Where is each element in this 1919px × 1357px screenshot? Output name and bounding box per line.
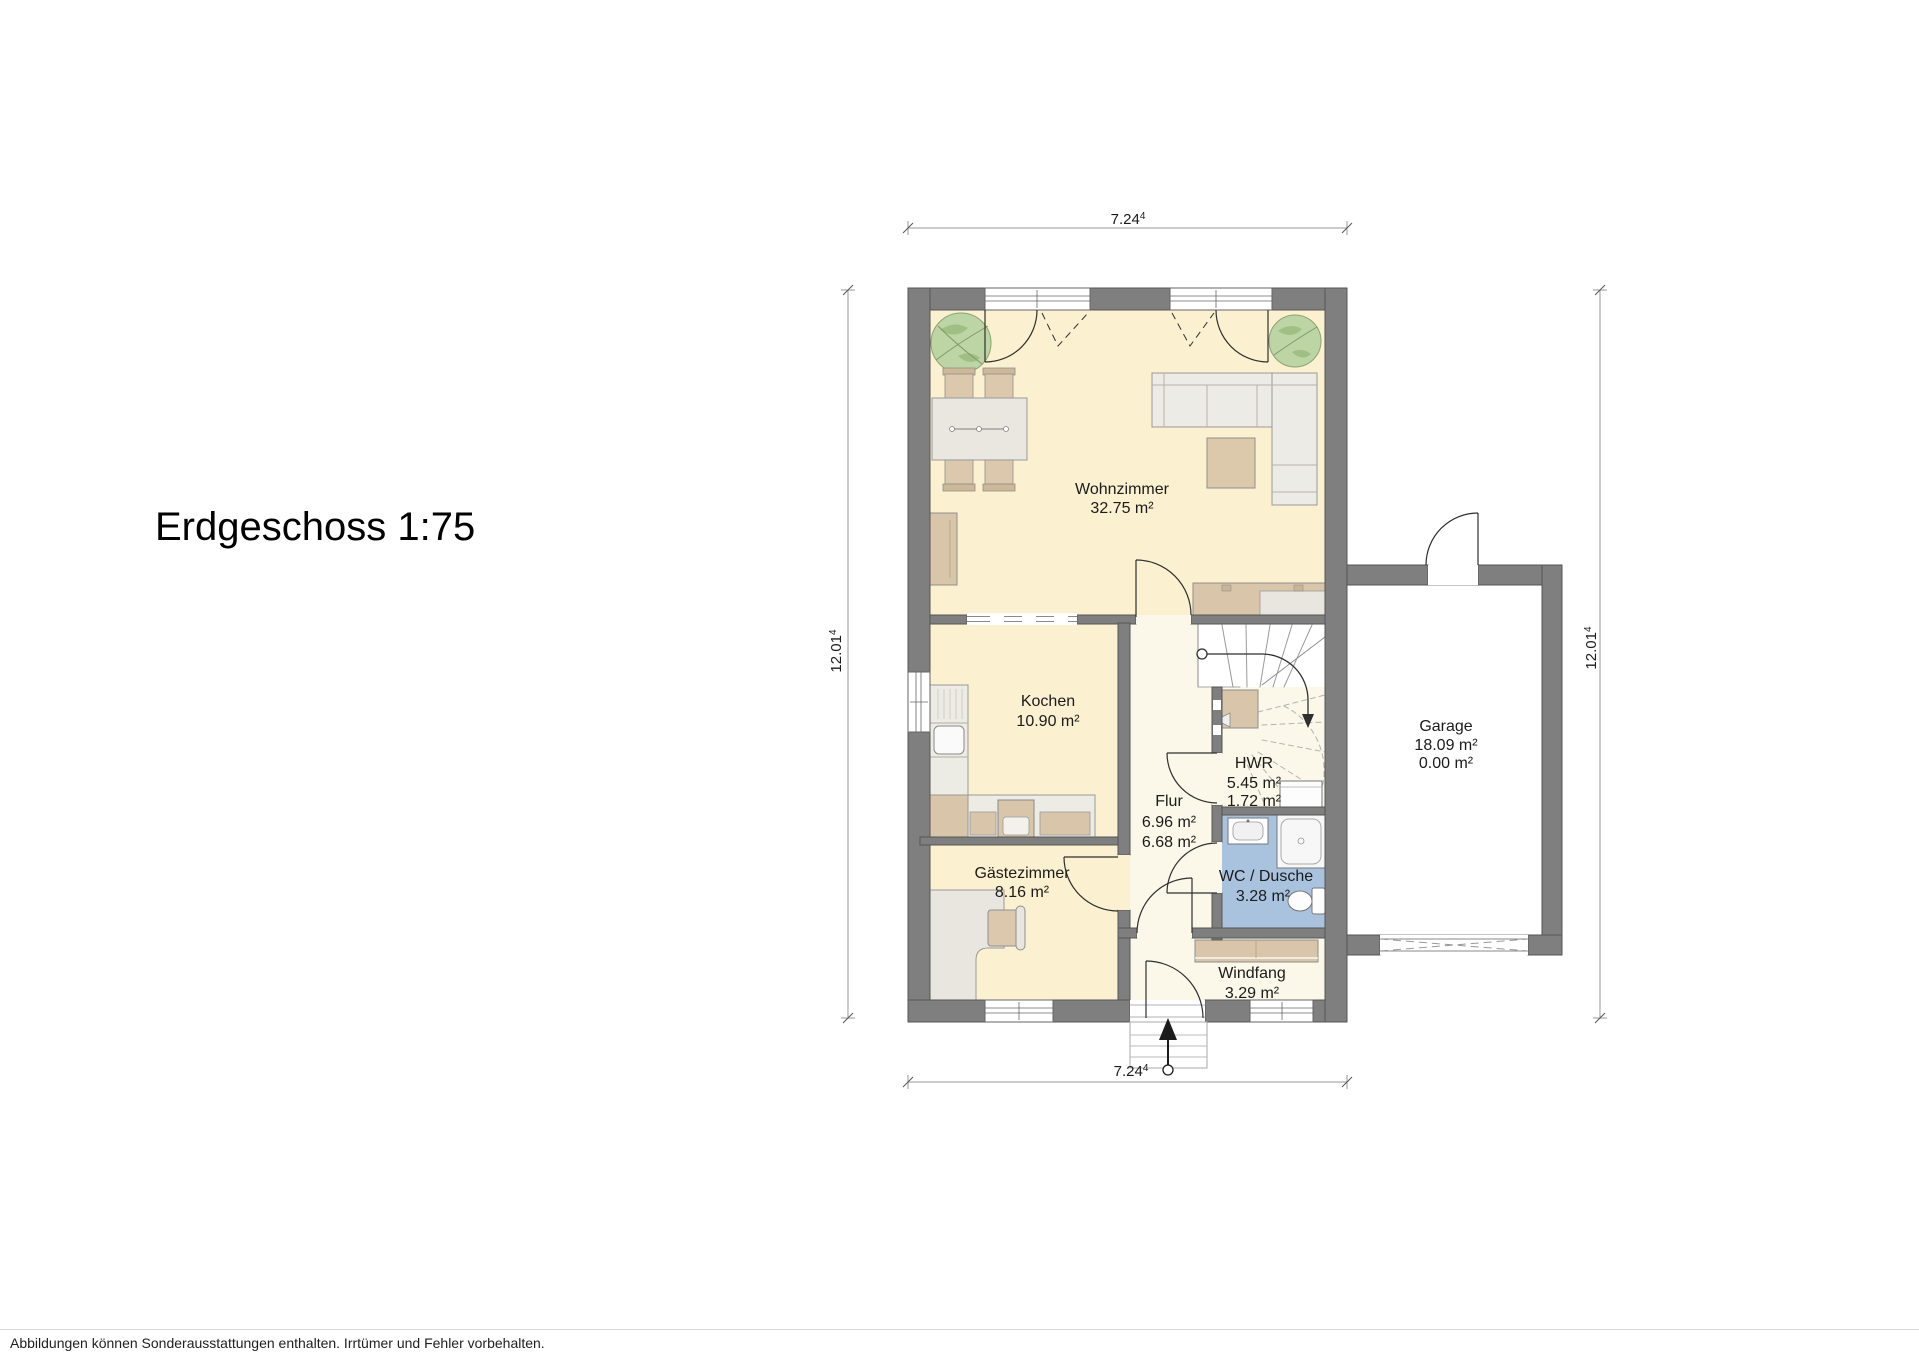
- wall-interior: [930, 615, 967, 624]
- window: [985, 1000, 1053, 1022]
- svg-text:Windfang: Windfang: [1218, 965, 1286, 982]
- wall-interior: [920, 837, 1118, 845]
- svg-text:6.96 m²: 6.96 m²: [1142, 814, 1197, 831]
- svg-text:HWR: HWR: [1235, 755, 1273, 772]
- window: [1250, 1000, 1313, 1022]
- wall: [1090, 288, 1170, 310]
- door-gap: [1428, 565, 1478, 585]
- toilet: [1312, 888, 1325, 914]
- lowboard: [1193, 583, 1327, 615]
- disclaimer-text: Abbildungen können Sonderausstattungen e…: [10, 1335, 545, 1351]
- plant-icon: [931, 313, 991, 373]
- floor-plan-page: Erdgeschoss 1:75: [0, 0, 1919, 1357]
- chair: [985, 460, 1013, 484]
- svg-text:3.28 m²: 3.28 m²: [1236, 888, 1291, 905]
- wall-garage: [1528, 935, 1562, 955]
- svg-text:6.68 m²: 6.68 m²: [1142, 834, 1197, 851]
- entrance-opening: [1130, 1000, 1205, 1022]
- svg-text:0.00 m²: 0.00 m²: [1419, 755, 1474, 772]
- garage-door-opening: [1380, 935, 1528, 955]
- plant-icon: [1269, 315, 1321, 367]
- wall-garage: [1347, 565, 1428, 585]
- footer-divider: [0, 1329, 1919, 1330]
- wall: [1053, 1000, 1130, 1022]
- wardrobe: [1195, 940, 1318, 962]
- wall: [908, 288, 930, 672]
- svg-text:3.29 m²: 3.29 m²: [1225, 985, 1280, 1002]
- wall-interior: [1212, 805, 1222, 842]
- svg-text:Flur: Flur: [1155, 793, 1183, 810]
- floor-plan-drawing: 7.244 7.244 12.014 12.014 Wohnzimmer 32.…: [0, 0, 1919, 1357]
- window: [1170, 288, 1272, 310]
- wall-garage: [1542, 565, 1562, 955]
- wall-opening: [967, 613, 1077, 625]
- sideboard: [930, 513, 957, 585]
- svg-text:WC / Dusche: WC / Dusche: [1219, 868, 1313, 885]
- dim-label-top: 7.244: [1111, 211, 1146, 228]
- dim-label-right: 12.014: [1583, 626, 1600, 670]
- door-gap: [1136, 615, 1191, 624]
- door-gap: [1118, 855, 1130, 910]
- wall-interior: [1118, 928, 1137, 938]
- shower: [1277, 815, 1325, 868]
- wall: [908, 732, 930, 1022]
- wall: [908, 1000, 985, 1022]
- wall: [1205, 1000, 1250, 1022]
- wall-interior: [1118, 623, 1130, 855]
- svg-text:18.09 m²: 18.09 m²: [1414, 737, 1478, 754]
- svg-text:1.72 m²: 1.72 m²: [1227, 793, 1282, 810]
- svg-text:Kochen: Kochen: [1021, 693, 1075, 710]
- wall-interior: [1192, 928, 1325, 938]
- svg-text:10.90 m²: 10.90 m²: [1016, 713, 1080, 730]
- door-swing-garage: [1426, 513, 1478, 565]
- dim-label-left: 12.014: [828, 629, 845, 673]
- svg-text:8.16 m²: 8.16 m²: [995, 884, 1050, 901]
- wall: [1325, 288, 1347, 1022]
- window: [908, 672, 930, 732]
- svg-text:5.45 m²: 5.45 m²: [1227, 775, 1282, 792]
- wall-interior: [1212, 687, 1222, 753]
- svg-text:Gästezimmer: Gästezimmer: [974, 865, 1070, 882]
- door-gap: [1137, 928, 1192, 938]
- svg-text:Garage: Garage: [1419, 718, 1472, 735]
- door-gap: [1212, 753, 1222, 805]
- washing-machine: [1280, 781, 1322, 807]
- svg-text:32.75 m²: 32.75 m²: [1090, 500, 1154, 517]
- room-label-garage: Garage 18.09 m² 0.00 m²: [1414, 718, 1478, 772]
- chair: [985, 374, 1013, 398]
- wall-interior: [1118, 910, 1130, 1000]
- chair: [945, 460, 973, 484]
- dim-label-bottom: 7.244: [1114, 1063, 1149, 1080]
- wall-interior: [1191, 615, 1325, 624]
- ottoman: [1207, 438, 1255, 488]
- wall-garage: [1347, 935, 1380, 955]
- chair: [945, 374, 973, 398]
- window: [985, 288, 1090, 310]
- kitchen-sink: [934, 726, 964, 754]
- svg-text:Wohnzimmer: Wohnzimmer: [1075, 481, 1170, 498]
- desk-chair: [988, 910, 1018, 946]
